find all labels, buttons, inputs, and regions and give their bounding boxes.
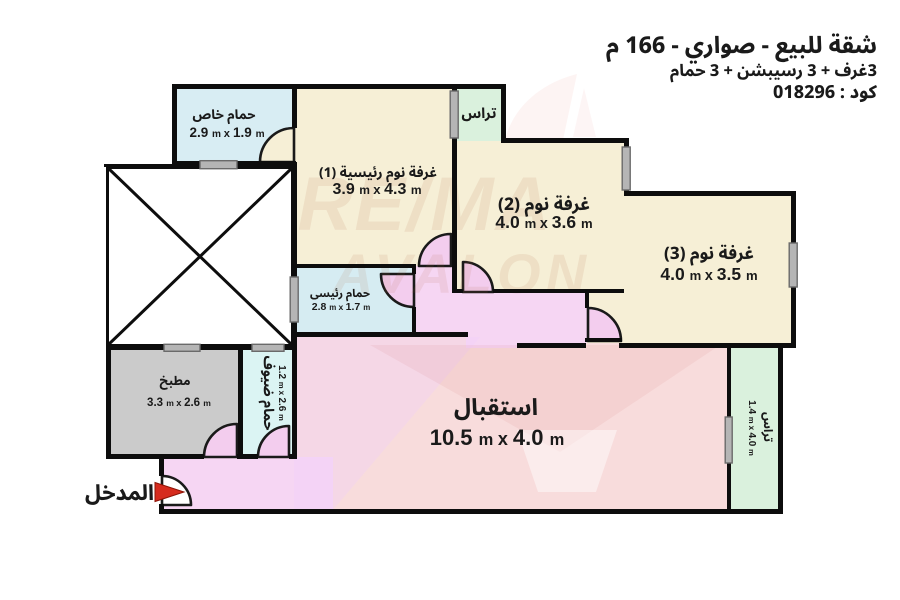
svg-text:RE/MA: RE/MA [298, 162, 553, 247]
svg-text:1.4 m x 4.0 m: 1.4 m x 4.0 m [746, 400, 757, 456]
svg-text:10.5 m x 4.0 m: 10.5 m x 4.0 m [430, 425, 565, 450]
svg-text:AVALON: AVALON [331, 242, 591, 305]
svg-text:3.9 m x 4.3 m: 3.9 m x 4.3 m [333, 181, 422, 198]
svg-text:1.2 m x 2.6 m: 1.2 m x 2.6 m [276, 365, 287, 421]
svg-text:3.3 m x 2.6 m: 3.3 m x 2.6 m [147, 397, 211, 409]
svg-text:2.9 m x 1.9 m: 2.9 m x 1.9 m [189, 125, 264, 140]
svg-text:2.8 m x 1.7 m: 2.8 m x 1.7 m [312, 301, 370, 313]
